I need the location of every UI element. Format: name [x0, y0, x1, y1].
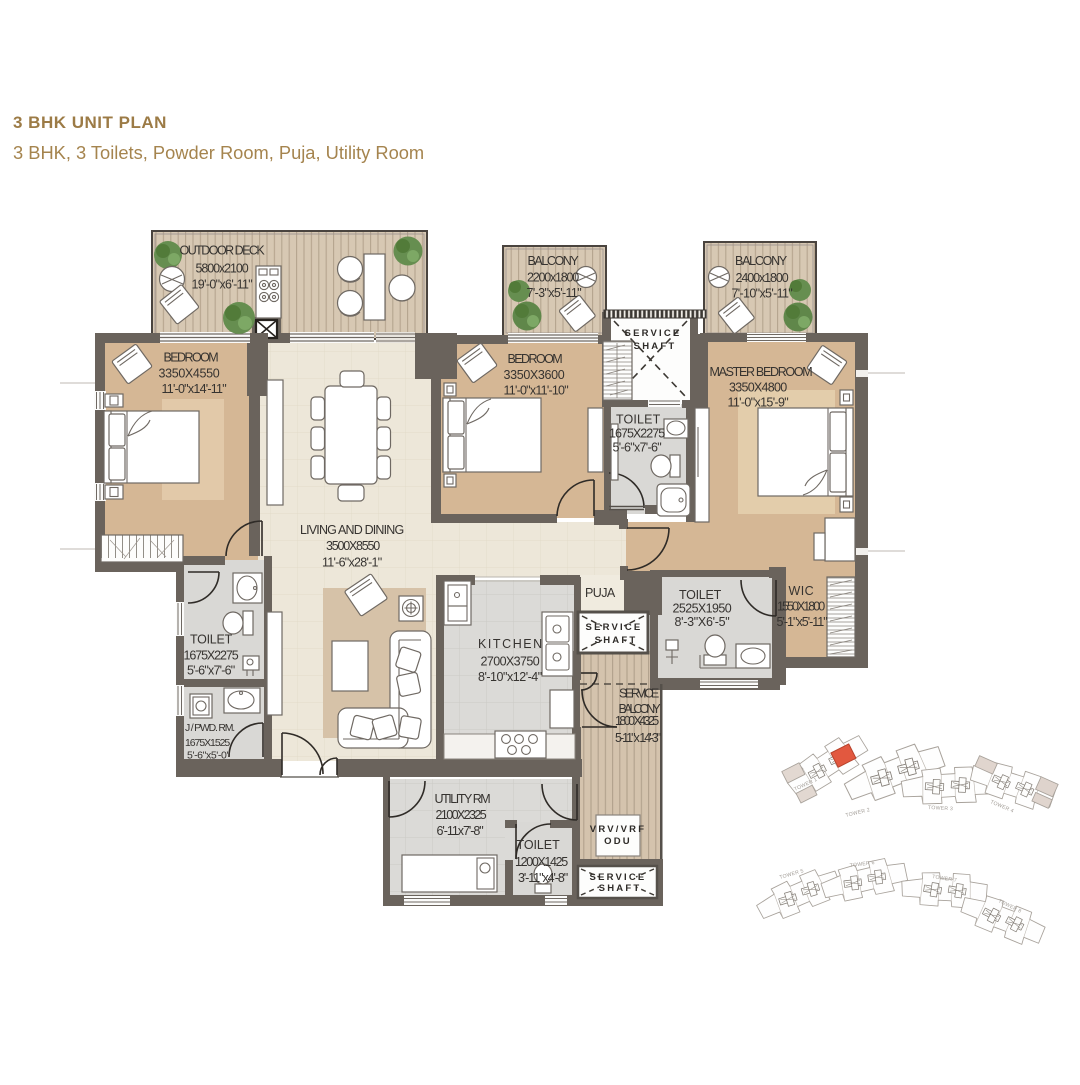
svg-text:11'-0"x11'-10": 11'-0"x11'-10"	[504, 384, 569, 398]
svg-text:3 BHK, 3 Toilets, Powder Room,: 3 BHK, 3 Toilets, Powder Room, Puja, Uti…	[13, 142, 424, 163]
svg-text:MASTER BEDROOM: MASTER BEDROOM	[710, 365, 813, 379]
svg-text:SHAFT: SHAFT	[599, 883, 642, 894]
svg-text:ODU: ODU	[604, 836, 632, 847]
svg-text:2200x1800: 2200x1800	[527, 271, 579, 285]
svg-text:WIC: WIC	[789, 584, 814, 598]
svg-text:SERVICE: SERVICE	[619, 687, 659, 701]
svg-text:5'-6"x7'-6": 5'-6"x7'-6"	[187, 664, 235, 678]
svg-text:BEDROOM: BEDROOM	[508, 352, 563, 366]
svg-text:8'-10"x12'-4": 8'-10"x12'-4"	[478, 670, 542, 684]
svg-text:3350X4800: 3350X4800	[729, 381, 787, 395]
svg-text:OUTDOOR DECK: OUTDOOR DECK	[180, 244, 266, 258]
svg-text:1675X2275: 1675X2275	[184, 649, 239, 663]
svg-text:SHAFT: SHAFT	[634, 341, 677, 352]
svg-text:11'-0"x15'-9": 11'-0"x15'-9"	[728, 396, 789, 410]
svg-text:2100X2325: 2100X2325	[436, 808, 487, 822]
svg-text:VRV/VRF: VRV/VRF	[590, 824, 646, 835]
svg-text:3350X3600: 3350X3600	[504, 368, 565, 382]
svg-text:5-11"x 14'-3": 5-11"x 14'-3"	[615, 731, 661, 745]
svg-text:2400x1800: 2400x1800	[736, 271, 789, 285]
svg-text:LIVING AND DINING: LIVING AND DINING	[300, 523, 404, 537]
svg-text:1800 X4325: 1800 X4325	[615, 714, 659, 728]
svg-text:5'-6"x7'-6": 5'-6"x7'-6"	[613, 441, 662, 455]
svg-text:SERVICE: SERVICE	[590, 872, 647, 883]
svg-text:BALCONY: BALCONY	[735, 254, 788, 268]
svg-text:5'-1"x5'-11": 5'-1"x5'-11"	[777, 615, 828, 629]
svg-text:1675X2275: 1675X2275	[609, 427, 665, 441]
svg-text:7'-10"x5'-11": 7'-10"x5'-11"	[732, 287, 793, 301]
svg-text:J / PWD. RM.: J / PWD. RM.	[185, 722, 235, 734]
svg-text:BALCONY: BALCONY	[528, 254, 580, 268]
svg-text:2700X3750: 2700X3750	[481, 655, 540, 669]
svg-text:3350X4550: 3350X4550	[159, 367, 220, 381]
svg-text:3'-11"x4'-8": 3'-11"x4'-8"	[518, 871, 568, 885]
svg-text:UTILITY RM: UTILITY RM	[435, 792, 491, 806]
svg-text:PUJA: PUJA	[585, 586, 616, 600]
svg-text:7'-3"x5'-11": 7'-3"x5'-11"	[527, 286, 582, 300]
svg-text:1550X1800: 1550X1800	[777, 600, 825, 614]
svg-text:1675X1525: 1675X1525	[185, 737, 230, 749]
svg-text:19'-0"x6'-11": 19'-0"x6'-11"	[192, 278, 253, 292]
svg-text:TOILET: TOILET	[616, 413, 661, 427]
svg-text:5800x2100: 5800x2100	[196, 262, 249, 276]
svg-text:11'-6"x28'-1": 11'-6"x28'-1"	[322, 556, 382, 570]
svg-text:3500X8550: 3500X8550	[326, 539, 380, 553]
svg-text:BEDROOM: BEDROOM	[164, 351, 219, 365]
svg-text:8'-3"X6'-5": 8'-3"X6'-5"	[675, 615, 730, 629]
svg-text:SERVICE: SERVICE	[586, 622, 643, 633]
svg-text:SHAFT: SHAFT	[595, 635, 638, 646]
svg-text:KITCHEN: KITCHEN	[478, 637, 542, 651]
svg-text:2525X1950: 2525X1950	[673, 602, 732, 616]
svg-text:3 BHK UNIT PLAN: 3 BHK UNIT PLAN	[13, 113, 167, 132]
svg-text:11'-0"x14'-11": 11'-0"x14'-11"	[162, 382, 227, 396]
svg-text:5'-6"x5'-0": 5'-6"x5'-0"	[187, 750, 230, 762]
svg-text:TOILET: TOILET	[679, 588, 722, 602]
svg-text:6'-11x7'-8": 6'-11x7'-8"	[437, 824, 484, 838]
svg-text:1200X1425: 1200X1425	[515, 855, 568, 869]
svg-text:TOILET: TOILET	[190, 633, 233, 647]
svg-text:SERVICE: SERVICE	[625, 328, 682, 339]
svg-text:TOILET: TOILET	[517, 838, 561, 852]
